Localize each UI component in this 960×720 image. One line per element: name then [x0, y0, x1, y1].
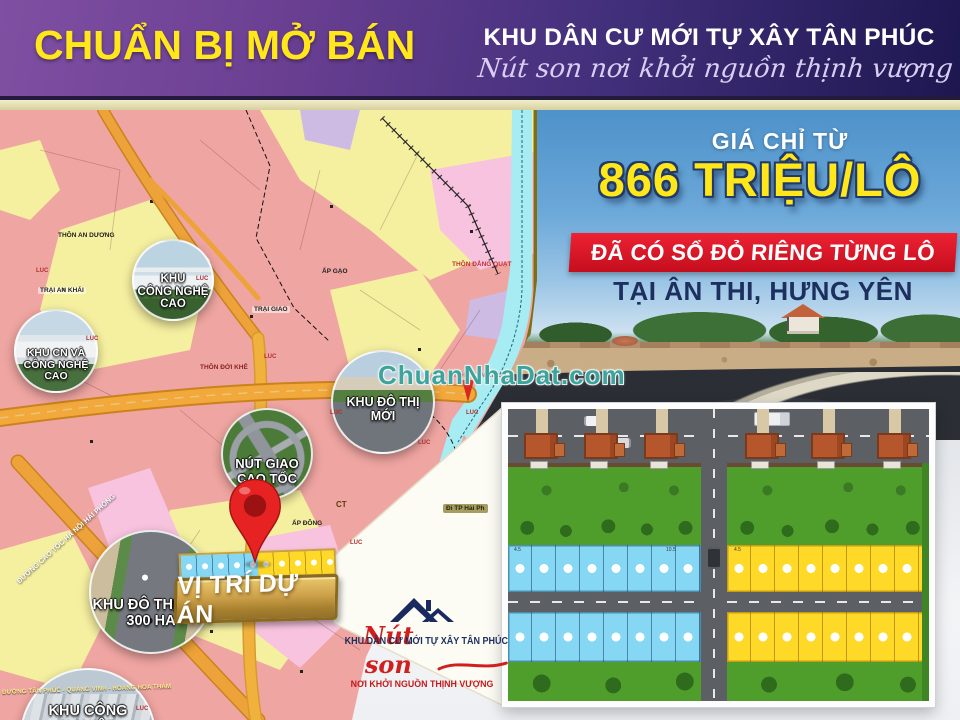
callout-label: KHU CN VÀ CÔNG NGHỆ CAO: [16, 348, 96, 383]
driveway: [536, 409, 548, 433]
parcel-code-label: LUC: [196, 276, 208, 282]
deck: [530, 461, 548, 469]
deck: [751, 461, 769, 469]
lot-dimension-label: 10.5: [666, 547, 676, 553]
car-on-vertical-road: [708, 547, 720, 569]
location-text: TẠI ÂN THI, HƯNG YÊN: [570, 276, 956, 307]
callout-label: KHU CÔNG NGHIỆP 350 HA: [22, 704, 154, 720]
callout-industrial-hitech-zone: KHU CN VÀ CÔNG NGHỆ CAO: [14, 309, 98, 393]
house-roof: [584, 433, 618, 459]
parcel-code-label: LUC: [136, 706, 148, 712]
place-label: TRẠI GIAO: [252, 306, 290, 313]
house-roof: [811, 433, 845, 459]
callout-line: NÚT GIAO: [223, 457, 311, 471]
header-bar: CHUẨN BỊ MỞ BÁN KHU DÂN CƯ MỚI TỰ XÂY TÂ…: [0, 0, 960, 96]
grass-strip-right: [922, 463, 929, 701]
callout-line: KHU CÔNG NGHIỆP: [22, 704, 154, 720]
house-lot: [873, 413, 917, 487]
place-label: TRẠI AN KHÁI: [38, 287, 86, 294]
logo-title: KHU DÂN CƯ MỚI TỰ XÂY TÂN PHÚC: [345, 636, 500, 647]
house-roof: [524, 433, 558, 459]
lot-dimension-label: 4.5: [514, 547, 521, 553]
deck: [817, 461, 835, 469]
photo-house: [781, 304, 825, 334]
callout-line: KHU ĐÔ THỊ MỚI: [333, 396, 433, 424]
driveway: [596, 409, 608, 433]
project-location-banner: VỊ TRÍ DỰ ÁN: [173, 574, 338, 624]
parcel-code-label: LUC: [36, 268, 48, 274]
parcel-code-label: LUC: [86, 336, 98, 342]
to-haiphong-label: Đi TP Hải Ph: [443, 504, 488, 513]
garage: [674, 443, 685, 457]
photo-dirt-pile: [612, 336, 638, 346]
logo-script-text: Nút son: [336, 621, 441, 679]
header-divider-cream: [0, 100, 960, 110]
parcel-code-label: LUC: [350, 540, 362, 546]
house-lot: [640, 413, 684, 487]
road-dash-line: [508, 601, 701, 603]
place-label: ẤP ĐÔNG: [292, 520, 322, 527]
location-pin-icon: [227, 477, 283, 567]
lot-row-yellow-bottom: [727, 612, 929, 662]
watermark-text: ChuanNhaDat.com: [378, 360, 626, 391]
callout-line: CÔNG NGHỆ CAO: [16, 360, 96, 383]
header-left-title: CHUẨN BỊ MỞ BÁN: [34, 22, 474, 69]
highway-code-label: CT: [336, 500, 347, 509]
logo-tagline: NƠI KHỞI NGUỒN THỊNH VƯỢNG: [340, 679, 503, 689]
parcel-code-label: LUC: [330, 410, 342, 416]
driveway: [757, 409, 769, 433]
site-plan-cross-road-left: [508, 592, 701, 612]
place-label: THÔN ĐẮNG QUẠT: [452, 261, 512, 268]
driveway: [656, 409, 668, 433]
project-logo-block: KHU DÂN CƯ MỚI TỰ XÂY TÂN PHÚC Nút son N…: [336, 588, 508, 689]
callout-label: KHU ĐÔ THỊ MỚI: [333, 396, 433, 424]
site-plan-panel: 4.5 10.5 4.5: [502, 403, 935, 707]
house-lot: [741, 413, 785, 487]
deck: [590, 461, 608, 469]
house-lot: [580, 413, 624, 487]
logo-script-row: Nút son: [336, 649, 508, 679]
header-right-subtitle: Nút son nơi khởi nguồn thịnh vượng: [476, 54, 941, 84]
parcel-code-label: LUC: [418, 440, 430, 446]
poster: CHUẨN BỊ MỞ BÁN KHU DÂN CƯ MỚI TỰ XÂY TÂ…: [0, 0, 960, 720]
place-label: THÔN AN DƯƠNG: [58, 232, 115, 239]
road-dash-line: [727, 601, 929, 603]
project-location-label: VỊ TRÍ DỰ ÁN: [176, 568, 335, 630]
garage: [554, 443, 565, 457]
house-lot: [520, 413, 564, 487]
garage: [775, 443, 786, 457]
house-roof: [644, 433, 678, 459]
header-right-title: KHU DÂN CƯ MỚI TỰ XÂY TÂN PHÚC: [478, 24, 940, 52]
deck: [883, 461, 901, 469]
site-plan-vertical-road: [701, 409, 727, 701]
lot-row-blue-bottom: [508, 612, 701, 662]
house-lot: [807, 413, 851, 487]
parcel-code-label: LUC: [264, 354, 276, 360]
garage: [841, 443, 852, 457]
place-label: ẤP GẠO: [322, 268, 348, 275]
driveway: [823, 409, 835, 433]
price-from-label: GIÁ CHỈ TỪ: [640, 128, 920, 155]
site-plan-cross-road-right: [727, 592, 929, 612]
price-value: 866 TRIỆU/LÔ: [562, 156, 958, 203]
place-label: THÔN ĐỚI KHÊ: [200, 364, 248, 371]
lot-dimension-label: 4.5: [734, 547, 741, 553]
garage: [614, 443, 625, 457]
swoosh-underline-icon: [437, 659, 508, 675]
callout-line: CÔNG NGHỆ CAO: [134, 286, 212, 311]
garage: [907, 443, 918, 457]
house-roof: [745, 433, 779, 459]
house-roof: [877, 433, 911, 459]
parcel-code-label: LUC: [466, 410, 478, 416]
red-book-banner-text: ĐÃ CÓ SỔ ĐỎ RIÊNG TỪNG LÔ: [590, 240, 936, 266]
driveway: [889, 409, 901, 433]
red-book-banner: ĐÃ CÓ SỔ ĐỎ RIÊNG TỪNG LÔ: [569, 233, 958, 272]
deck: [650, 461, 668, 469]
lot-row-yellow-top: [727, 545, 929, 592]
